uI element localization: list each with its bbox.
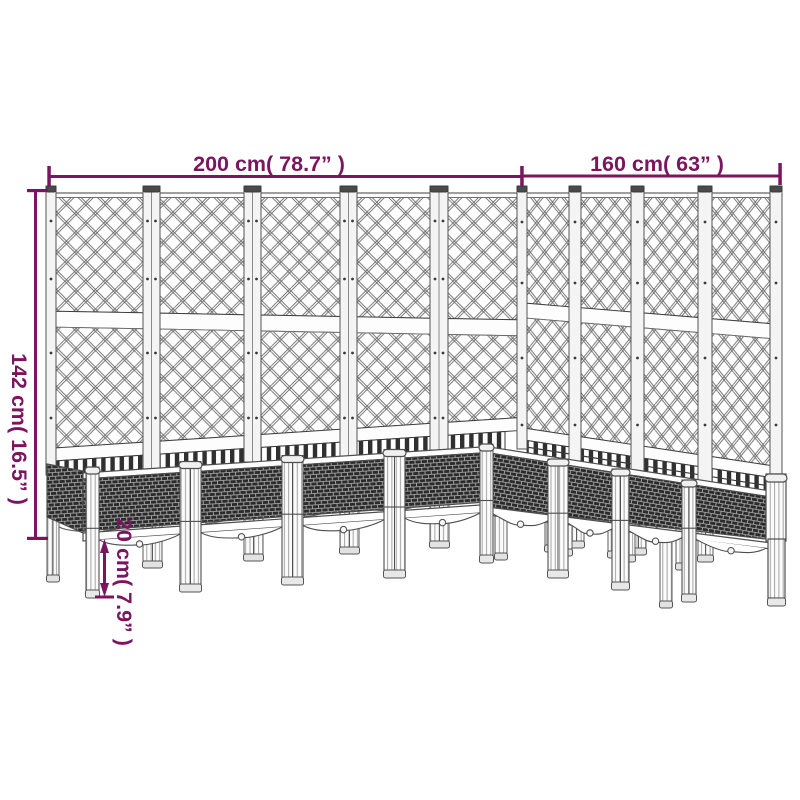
svg-text:200 cm( 78.7” ): 200 cm( 78.7” ) [193, 152, 345, 176]
svg-text:20 cm( 7.9” ): 20 cm( 7.9” ) [112, 518, 136, 646]
svg-text:142 cm( 16.5” ): 142 cm( 16.5” ) [7, 353, 31, 505]
svg-text:160 cm( 63” ): 160 cm( 63” ) [590, 152, 724, 176]
